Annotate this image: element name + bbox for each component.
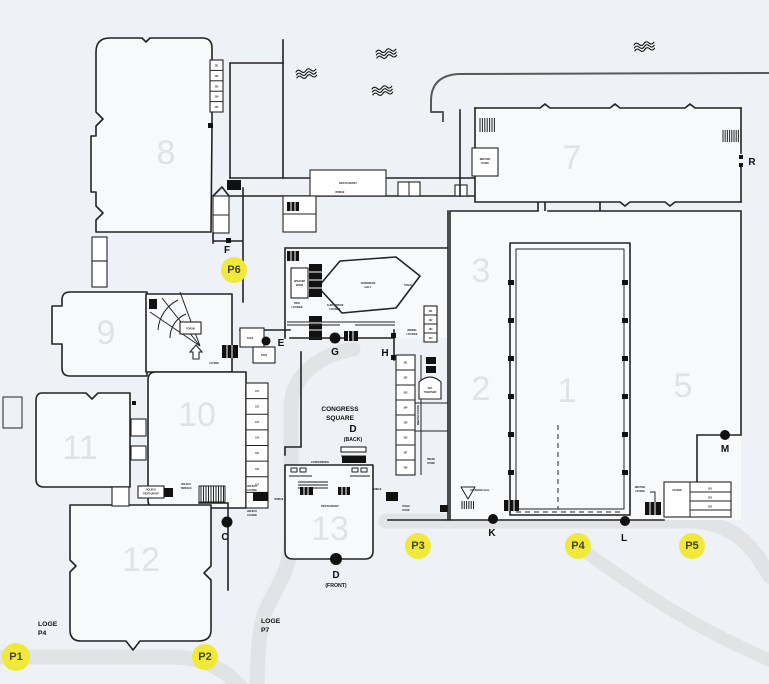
escalator-icon [344, 331, 358, 341]
escalator-icon [645, 502, 661, 515]
entrance-d-front-sub: (FRONT) [325, 583, 347, 589]
small-room [92, 237, 107, 261]
elevator-icon [222, 345, 238, 358]
small-room [131, 446, 146, 460]
restaurant-label: RESTAURANT [321, 504, 339, 508]
loge-p4-label: P4 [38, 630, 47, 637]
entrance-f-marker [226, 238, 231, 243]
entrance-l-label: L [621, 533, 627, 544]
stair-core [149, 299, 157, 309]
wave-icon [372, 85, 393, 97]
congress-square-label: CONGRESS [321, 406, 359, 413]
road-southeast-diagonal [585, 551, 769, 661]
edge-structure [3, 397, 22, 428]
parking-p5-label: P5 [685, 540, 698, 552]
congress-hall-label: HALL [365, 285, 372, 289]
entrance-k-label: K [488, 528, 496, 539]
stage-door-label: DOOR [403, 510, 410, 512]
escalator-icon [338, 487, 350, 495]
small-room [131, 419, 146, 436]
entrance-r-label: R [748, 157, 756, 168]
bridge-label: BRIDGE [336, 192, 345, 194]
loge-p4-label: LOGE [38, 621, 58, 628]
bridge-label: BRIDGE [373, 489, 382, 491]
stairs-icon [480, 118, 494, 132]
holiday-terrace-label: HOLIDAY [181, 483, 192, 486]
hall-9-number: 9 [97, 314, 116, 352]
entrance-c-marker [222, 517, 233, 528]
speaker-room-label: ROOM [296, 285, 303, 287]
parking-p2-badge: P2 [192, 644, 218, 670]
speaker-room-label: SPEAKER [294, 280, 305, 283]
speaker-room [291, 268, 308, 298]
holiday-lounge-label: LOUNGE [247, 490, 257, 492]
roof-edge [213, 187, 229, 196]
entrance-m-marker [720, 430, 730, 440]
congress-hall-label: CONGRESS [361, 281, 376, 285]
wave-icon [634, 41, 655, 53]
hall-13-number: 13 [311, 510, 349, 548]
escalator-icon [300, 487, 313, 495]
water-symbols [296, 41, 655, 97]
holiday-restaurant-room [138, 486, 164, 498]
holiday-lounge-label: HOLIDAY [247, 510, 258, 513]
meeting-lounge-label: LOUNGE [635, 491, 645, 493]
parking-p2-label: P2 [198, 651, 211, 663]
org-lounge-label: ORG [294, 301, 300, 305]
meeting-lounge-label: MEETING [635, 487, 646, 489]
west-section: 9 FORUM LOUNGE 10 101 102 103 104 105 10… [3, 292, 268, 508]
stage-door-label: STAGE [402, 505, 410, 508]
parking-p1-badge: P1 [2, 643, 30, 671]
get-together-label: GET [428, 388, 433, 390]
stage-label: STAGE [404, 284, 412, 287]
entrance-l-marker [620, 516, 630, 526]
hall-7-top-wall [475, 104, 741, 108]
bridge-bar [253, 492, 268, 501]
hall-7-fill [475, 108, 741, 202]
elevator-icon [426, 366, 436, 373]
loge-p7-label: LOGE [261, 618, 281, 625]
bridge-bar [227, 180, 241, 190]
entrance-r-marker [739, 163, 743, 167]
hall-1-number: 1 [558, 372, 577, 410]
entrance-g-marker [330, 333, 341, 344]
hall-5-number: 5 [674, 367, 693, 405]
entrance-d-back-sub: (BACK) [344, 437, 363, 443]
hall-7-complex: MEETING ROOM R 7 LOGE P0 [431, 73, 769, 233]
escalator-icon [504, 500, 519, 511]
small-room [112, 487, 129, 506]
entrance-f-label: F [224, 245, 230, 256]
hall-2-number: 2 [472, 370, 491, 408]
entrance-f-block: F [213, 187, 243, 302]
parking-p4-badge: P4 [565, 533, 591, 559]
bridge-bar [386, 492, 398, 501]
hall-8-outline [91, 38, 212, 232]
parking-p3-label: P3 [411, 540, 424, 552]
bridge-label: BRIDGE [275, 499, 284, 501]
entrance-m-label: M [721, 444, 729, 455]
holiday-restaurant-label: RESTAURANT [143, 493, 159, 496]
entrance-h-marker [391, 355, 396, 360]
entrance-g-label: G [331, 347, 339, 358]
hall-7-number: 7 [563, 139, 582, 177]
elevator-icon [164, 488, 173, 497]
meeting-room [472, 148, 498, 176]
forum-label: FORUM [186, 329, 195, 331]
entrance-d-front-label: D [332, 570, 339, 581]
room-label: MEETING [480, 159, 491, 161]
small-room [455, 185, 467, 196]
wall [230, 63, 283, 178]
loge-p7-label: P7 [261, 627, 270, 634]
venue-floor-plan: 201 202 203 204 205 8 RESTAURANT BRIDGE … [0, 0, 769, 684]
parking-p1-label: P1 [9, 651, 22, 663]
press-room-label: PRESS [427, 459, 435, 461]
wave-icon [296, 68, 317, 80]
entrance-d-back-label: D [349, 424, 356, 435]
lounge-block [664, 482, 731, 517]
auditorium-lounge-label: AUDITORIUM [327, 303, 344, 307]
entrance-hall-label: ENTRANCE HALL [470, 489, 490, 492]
press-room-label: ROOM [427, 463, 434, 465]
table-icon [287, 202, 299, 211]
door-structure [341, 447, 366, 452]
entrance-e-marker [262, 337, 271, 346]
entrance-k-marker [488, 514, 498, 524]
hall-8-number: 8 [157, 134, 176, 172]
floor-plan-svg: 201 202 203 204 205 8 RESTAURANT BRIDGE … [0, 0, 769, 684]
door-marker [208, 123, 213, 128]
wave-icon [376, 48, 397, 60]
get-together-label: TOGETHER [424, 392, 437, 394]
entrance-h-label: H [381, 348, 388, 359]
parking-p5-badge: P5 [679, 533, 705, 559]
cafe-label: CAFE [261, 354, 268, 357]
parking-p6-label: P6 [227, 264, 240, 276]
dining-lounge-label: LOUNGE [406, 332, 417, 336]
entrance-c-label: C [221, 532, 228, 543]
lounge-label: LOUNGE [672, 490, 682, 492]
parking-p6-badge: P6 [221, 257, 247, 283]
org-lounge-label: LOUNGE [291, 305, 302, 309]
entrance-h-marker [391, 333, 396, 338]
congress-square-label: SQUARE [326, 415, 354, 422]
elevator-icon [426, 357, 436, 364]
holiday-lounge-label: HOLIDAY [247, 485, 258, 488]
lounge-label: LOUNGE [209, 363, 219, 365]
table-icon [287, 251, 299, 261]
entrance-e-label: E [278, 338, 285, 349]
parking-p4-label: P4 [571, 540, 585, 552]
holiday-lounge-label: LOUNGE [247, 515, 257, 517]
hall-3-number: 3 [472, 252, 491, 290]
restaurant-label: RESTAURANT [339, 181, 357, 185]
escalator-icon [309, 316, 322, 340]
escalator-icon [309, 264, 322, 297]
door-marker [440, 505, 448, 512]
cafe-label: CAFE [247, 337, 254, 340]
rooftop-bar [342, 456, 366, 463]
entrance-r-marker [739, 155, 743, 159]
hall-11-number: 11 [62, 429, 97, 467]
hall-12-number: 12 [122, 541, 160, 579]
conference-label: CONFERENCE [311, 460, 329, 464]
hall-8: 201 202 203 204 205 8 [91, 38, 223, 287]
small-room [92, 261, 107, 287]
dining-lounge-label: DINING [407, 328, 416, 332]
hall-10-number: 10 [178, 396, 216, 434]
parking-p3-badge: P3 [405, 533, 431, 559]
room-label: ROOM [481, 163, 488, 165]
auditorium-lounge-label: LOUNGE [329, 307, 340, 311]
meeting-rooms-label: MEETING ROOMS [418, 405, 420, 425]
door-marker [132, 401, 136, 405]
holiday-terrace-label: TERRACE [180, 487, 192, 490]
entrance-d-front-marker [330, 553, 342, 565]
holiday-restaurant-label: HOLIDAY [146, 489, 157, 492]
